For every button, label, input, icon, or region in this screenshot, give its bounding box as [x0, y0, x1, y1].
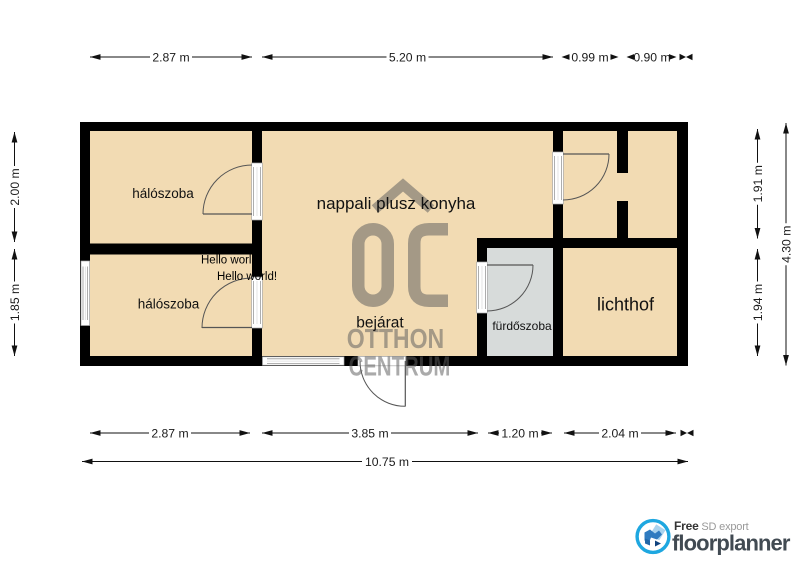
- svg-text:hálószoba: hálószoba: [132, 186, 194, 201]
- svg-text:nappali plusz konyha: nappali plusz konyha: [317, 194, 476, 213]
- svg-text:0.99 m: 0.99 m: [571, 51, 608, 65]
- svg-text:2.00 m: 2.00 m: [8, 168, 22, 205]
- svg-text:hálószoba: hálószoba: [138, 297, 200, 312]
- svg-text:Hello world!: Hello world!: [217, 271, 277, 283]
- svg-text:1.20 m: 1.20 m: [501, 427, 538, 441]
- svg-text:1.85 m: 1.85 m: [8, 284, 22, 321]
- svg-text:fürdőszoba: fürdőszoba: [492, 319, 552, 333]
- svg-text:2.87 m: 2.87 m: [151, 427, 188, 441]
- svg-text:4.30 m: 4.30 m: [780, 226, 794, 263]
- svg-text:2.87 m: 2.87 m: [152, 51, 189, 65]
- svg-text:5.20 m: 5.20 m: [389, 51, 426, 65]
- svg-text:0.90 m: 0.90 m: [633, 51, 670, 65]
- svg-text:lichthof: lichthof: [597, 295, 655, 315]
- svg-text:CENTRUM: CENTRUM: [349, 352, 451, 383]
- svg-text:2.04 m: 2.04 m: [601, 427, 638, 441]
- svg-text:1.94 m: 1.94 m: [751, 284, 765, 321]
- svg-text:10.75 m: 10.75 m: [365, 455, 409, 469]
- svg-text:floorplanner: floorplanner: [672, 531, 791, 556]
- svg-text:1.91 m: 1.91 m: [751, 165, 765, 202]
- svg-text:Hello world!: Hello world!: [201, 255, 261, 267]
- svg-text:bejárat: bejárat: [356, 315, 404, 332]
- svg-text:3.85 m: 3.85 m: [351, 427, 388, 441]
